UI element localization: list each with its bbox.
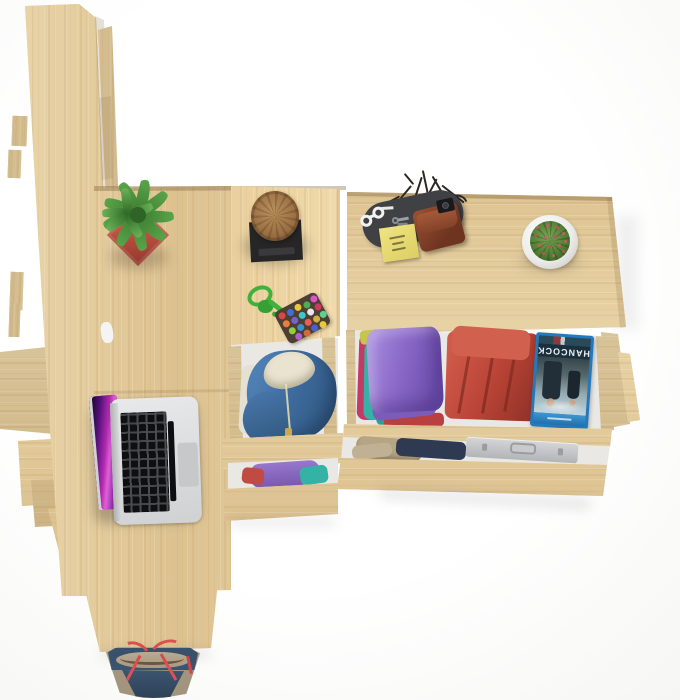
floor-shadow — [230, 518, 335, 526]
tote-bag — [104, 640, 202, 700]
bluray-case: HANCOCK — [530, 332, 594, 430]
shirt-red-top-flap — [451, 325, 531, 360]
figure-torso — [567, 370, 581, 399]
figure-torso — [542, 361, 563, 400]
briefcase-latch — [558, 448, 563, 455]
scene: HANCOCK — [0, 0, 680, 700]
shelf-tab — [8, 303, 20, 337]
note-scribble — [392, 247, 406, 252]
note-scribble — [392, 241, 404, 245]
sticky-note — [379, 224, 419, 263]
shirt-purple-main — [366, 326, 444, 414]
twig — [404, 173, 415, 185]
cactus-spines — [536, 226, 539, 229]
briefcase-latch — [482, 444, 487, 451]
key-blade — [398, 217, 409, 222]
laptop — [86, 390, 211, 532]
camera-lens — [441, 201, 449, 209]
folded-shirt-red — [241, 467, 265, 485]
succulent-center — [130, 207, 146, 223]
shelf-tab — [11, 116, 27, 147]
laptop-keyboard — [120, 411, 169, 513]
laptop-trackpad — [177, 442, 199, 487]
cover-figure-woman — [567, 370, 581, 399]
stool-base-slot — [258, 247, 294, 256]
stool-seat-grain — [251, 191, 299, 241]
clothes-stack-red — [444, 326, 544, 426]
glasses-arm — [381, 206, 393, 210]
note-scribble — [389, 235, 405, 240]
banner-glyph — [547, 417, 571, 421]
floor-shadow — [100, 650, 210, 658]
briefcase-handle — [510, 442, 537, 455]
cover-figure-man — [542, 361, 563, 400]
bluray-cover-art — [534, 356, 590, 415]
shelf-tab — [8, 150, 22, 178]
pouch-beads — [277, 311, 286, 320]
succulent-plant — [98, 175, 180, 287]
bluray-banner — [533, 412, 586, 427]
